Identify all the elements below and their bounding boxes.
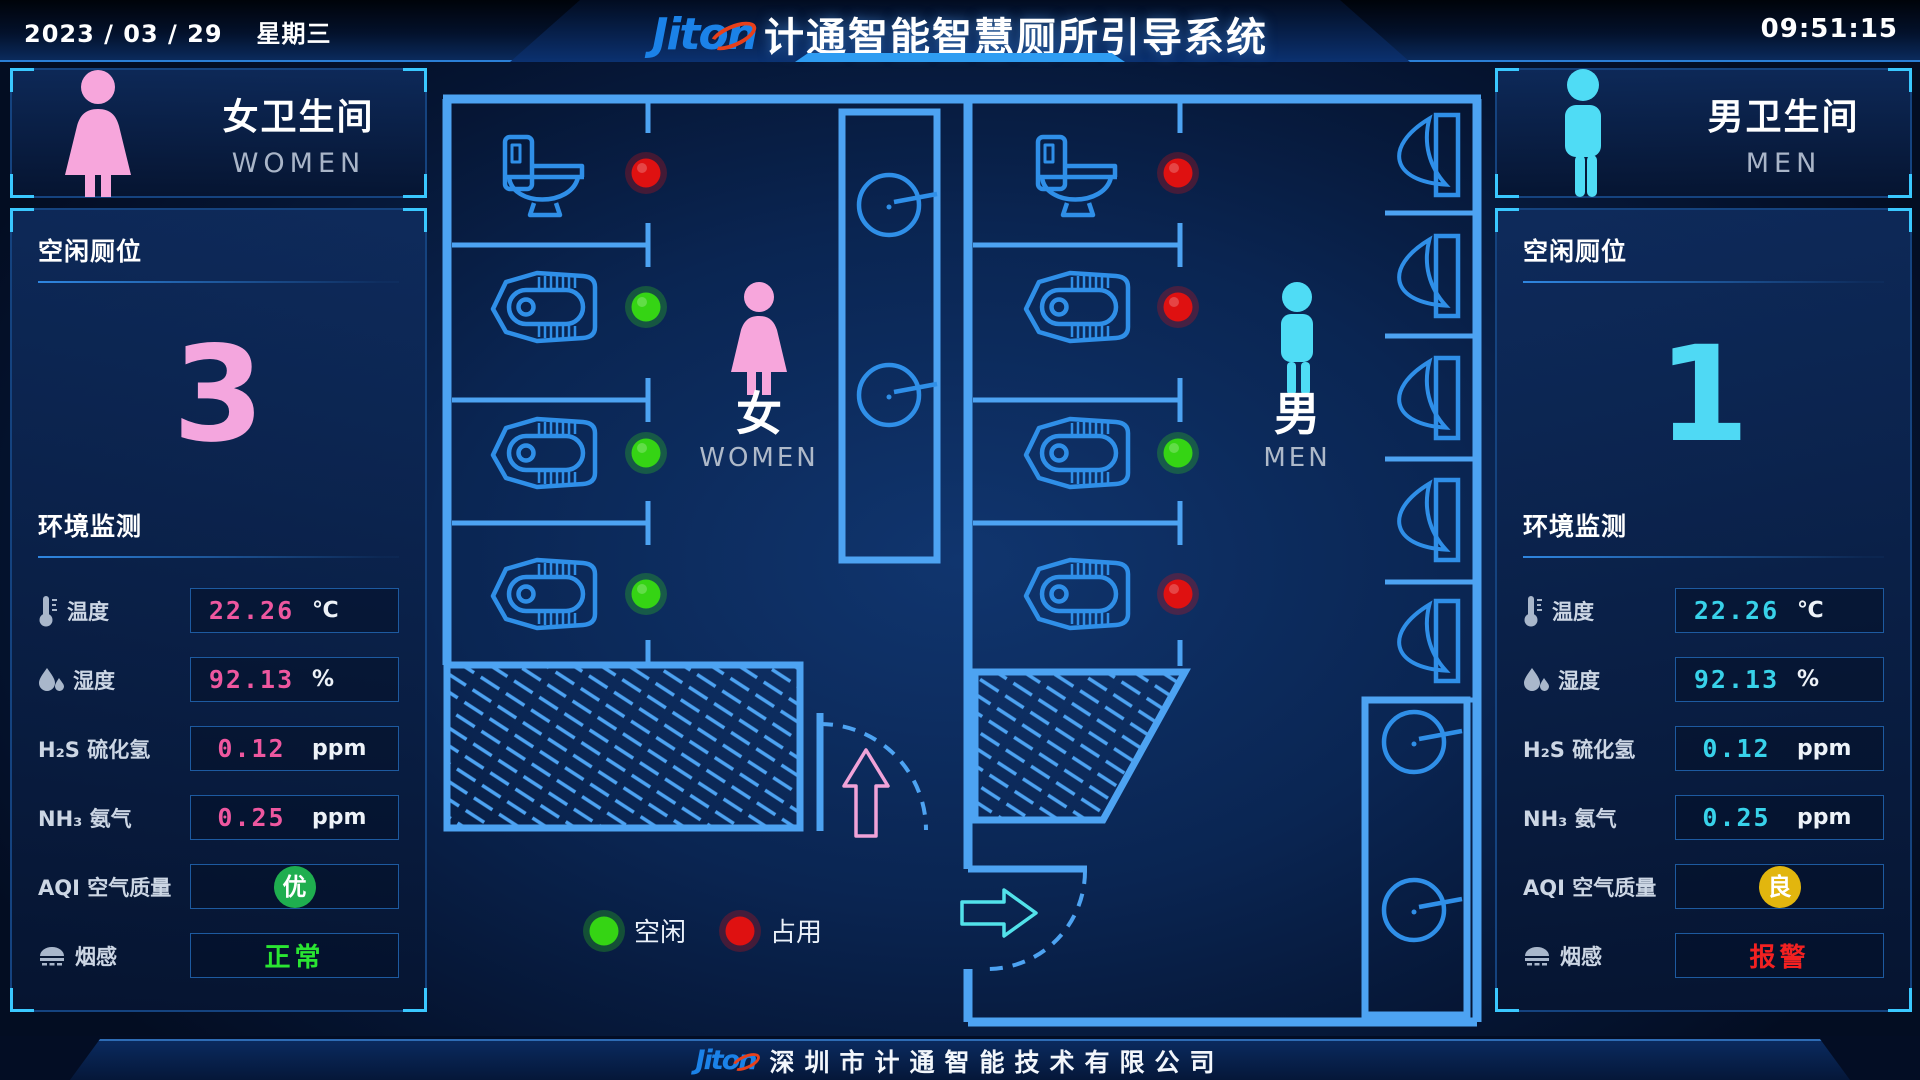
stall-light-women-2-vacant (632, 293, 661, 322)
woman-icon (52, 69, 144, 197)
squat-toilet-icon (1026, 419, 1128, 487)
weekday-text: 星期三 (257, 20, 332, 48)
men-sink-room (1365, 700, 1467, 1015)
date-text: 2023 / 03 / 29 (24, 20, 223, 48)
woman-figure-icon (731, 282, 787, 395)
legend: 空闲 占用 (583, 910, 822, 952)
urinal-icon (1392, 601, 1458, 681)
women-nh3-row: NH₃ 氨气 0.25ppm (38, 795, 399, 840)
men-h2s-value: 0.12 (1676, 734, 1797, 763)
stall-light-highlight (637, 163, 647, 173)
title-underline-bar (795, 53, 1125, 62)
women-room-title-en: WOMEN (232, 148, 366, 179)
women-env-title: 环境监测 (38, 507, 399, 543)
women-h2s-value: 0.12 (191, 734, 312, 763)
squat-toilet-icon (1026, 273, 1128, 341)
smoke-detector-icon (38, 944, 66, 968)
men-aqi-row: AQI 空气质量 良 (1523, 864, 1884, 909)
women-area-label-en: WOMEN (699, 443, 818, 473)
women-vacant-count: 3 (38, 283, 399, 507)
stall-light-highlight (637, 443, 647, 453)
women-temp-value: 22.26 (191, 596, 312, 625)
hatched-areas (447, 665, 1185, 828)
stall-light-highlight (1169, 443, 1179, 453)
men-stats-card: 空闲厕位 1 环境监测 温度 22.26℃ 湿度 92.13% H₂S 硫化氢 … (1495, 208, 1912, 1012)
men-room-title: 男卫生间 (1707, 88, 1859, 140)
stall-light-men-1-occupied (1164, 159, 1193, 188)
women-stats-card: 空闲厕位 3 环境监测 温度 22.26℃ 湿度 92.13% H₂S 硫化氢 … (10, 208, 427, 1012)
jiton-logo: Jiton (652, 9, 756, 60)
stall-light-highlight (637, 584, 647, 594)
women-panel: 女卫生间 WOMEN 空闲厕位 3 环境监测 温度 22.26℃ 湿度 92.1… (10, 68, 427, 1012)
women-sink-room (842, 112, 937, 560)
sink-icon (859, 175, 937, 235)
squat-toilet-icon (1026, 560, 1128, 628)
women-vacant-title: 空闲厕位 (38, 232, 399, 268)
men-humidity-value: 92.13 (1676, 665, 1797, 694)
cyan-right-arrow-icon (962, 890, 1036, 936)
sink-icon (1384, 880, 1462, 940)
sitting-toilet-icon (1036, 137, 1117, 215)
smoke-detector-icon (1523, 944, 1551, 968)
walls (443, 99, 1481, 1022)
men-vacant-count: 1 (1523, 283, 1884, 507)
stall-light-women-4-vacant (632, 580, 661, 609)
men-door-arc (987, 871, 1085, 969)
legend-vacant-dot (590, 917, 619, 946)
stall-light-men-3-vacant (1164, 439, 1193, 468)
men-area-label-en: MEN (1263, 443, 1330, 473)
water-drops-icon (1523, 666, 1549, 694)
women-service-area (447, 665, 800, 828)
women-aqi-row: AQI 空气质量 优 (38, 864, 399, 909)
stall-light-highlight (1169, 297, 1179, 307)
women-smoke-row: 烟感 正常 (38, 933, 399, 978)
legend-vacant-label: 空闲 (634, 918, 686, 948)
stall-light-highlight (1169, 584, 1179, 594)
men-smoke-row: 烟感 报警 (1523, 933, 1884, 978)
men-vacant-title: 空闲厕位 (1523, 232, 1884, 268)
women-door-arc (820, 724, 926, 830)
header-date: 2023 / 03 / 29星期三 (24, 14, 332, 49)
header-clock: 09:51:15 (1761, 14, 1898, 44)
man-figure-icon (1281, 282, 1313, 395)
company-name: 深圳市计通智能技术有限公司 (769, 1043, 1224, 1079)
squat-toilet-icon (493, 419, 595, 487)
men-smoke-status: 报警 (1749, 937, 1809, 974)
men-temp-row: 温度 22.26℃ (1523, 588, 1884, 633)
footer: Jiton 深圳市计通智能技术有限公司 (0, 1036, 1920, 1080)
women-area-label: 女 (736, 387, 782, 441)
sink-icon (1384, 712, 1462, 772)
urinal-icon (1392, 358, 1458, 438)
men-service-area (975, 672, 1185, 820)
stall-light-women-3-vacant (632, 439, 661, 468)
stall-light-men-4-occupied (1164, 580, 1193, 609)
women-temp-row: 温度 22.26℃ (38, 588, 399, 633)
jiton-logo-footer: Jiton (696, 1045, 756, 1076)
men-nh3-row: NH₃ 氨气 0.25ppm (1523, 795, 1884, 840)
thermometer-icon (1523, 595, 1543, 627)
man-icon (1537, 69, 1629, 197)
men-nh3-value: 0.25 (1676, 803, 1797, 832)
women-humidity-value: 92.13 (191, 665, 312, 694)
stall-light-men-2-occupied (1164, 293, 1193, 322)
women-smoke-status: 正常 (264, 937, 324, 974)
thermometer-icon (38, 595, 58, 627)
women-room-title: 女卫生间 (222, 88, 374, 140)
women-fixtures (493, 137, 937, 628)
women-nh3-value: 0.25 (191, 803, 312, 832)
men-env-title: 环境监测 (1523, 507, 1884, 543)
stall-light-highlight (1169, 163, 1179, 173)
squat-toilet-icon (493, 560, 595, 628)
urinal-icon (1392, 115, 1458, 195)
men-panel: 男卫生间 MEN 空闲厕位 1 环境监测 温度 22.26℃ 湿度 92.13%… (1495, 68, 1912, 1012)
men-aqi-badge: 良 (1759, 866, 1801, 908)
men-humidity-row: 湿度 92.13% (1523, 657, 1884, 702)
stall-light-highlight (637, 297, 647, 307)
water-drops-icon (38, 666, 64, 694)
urinal-icon (1392, 236, 1458, 316)
sink-icon (859, 365, 937, 425)
men-room-title-en: MEN (1746, 148, 1822, 179)
men-temp-value: 22.26 (1676, 596, 1797, 625)
squat-toilet-icon (493, 273, 595, 341)
urinal-icon (1392, 480, 1458, 560)
women-h2s-row: H₂S 硫化氢 0.12ppm (38, 726, 399, 771)
men-header-card: 男卫生间 MEN (1495, 68, 1912, 198)
men-area-label: 男 (1274, 387, 1320, 441)
header: 2023 / 03 / 29星期三 Jiton 计通智能智慧厕所引导系统 09:… (0, 0, 1920, 62)
women-humidity-row: 湿度 92.13% (38, 657, 399, 702)
pink-up-arrow-icon (844, 750, 888, 836)
women-aqi-badge: 优 (274, 866, 316, 908)
legend-occupied-dot (726, 917, 755, 946)
men-h2s-row: H₂S 硫化氢 0.12ppm (1523, 726, 1884, 771)
stall-light-women-1-occupied (632, 159, 661, 188)
legend-occupied-label: 占用 (770, 918, 822, 948)
women-header-card: 女卫生间 WOMEN (10, 68, 427, 198)
sitting-toilet-icon (503, 137, 584, 215)
